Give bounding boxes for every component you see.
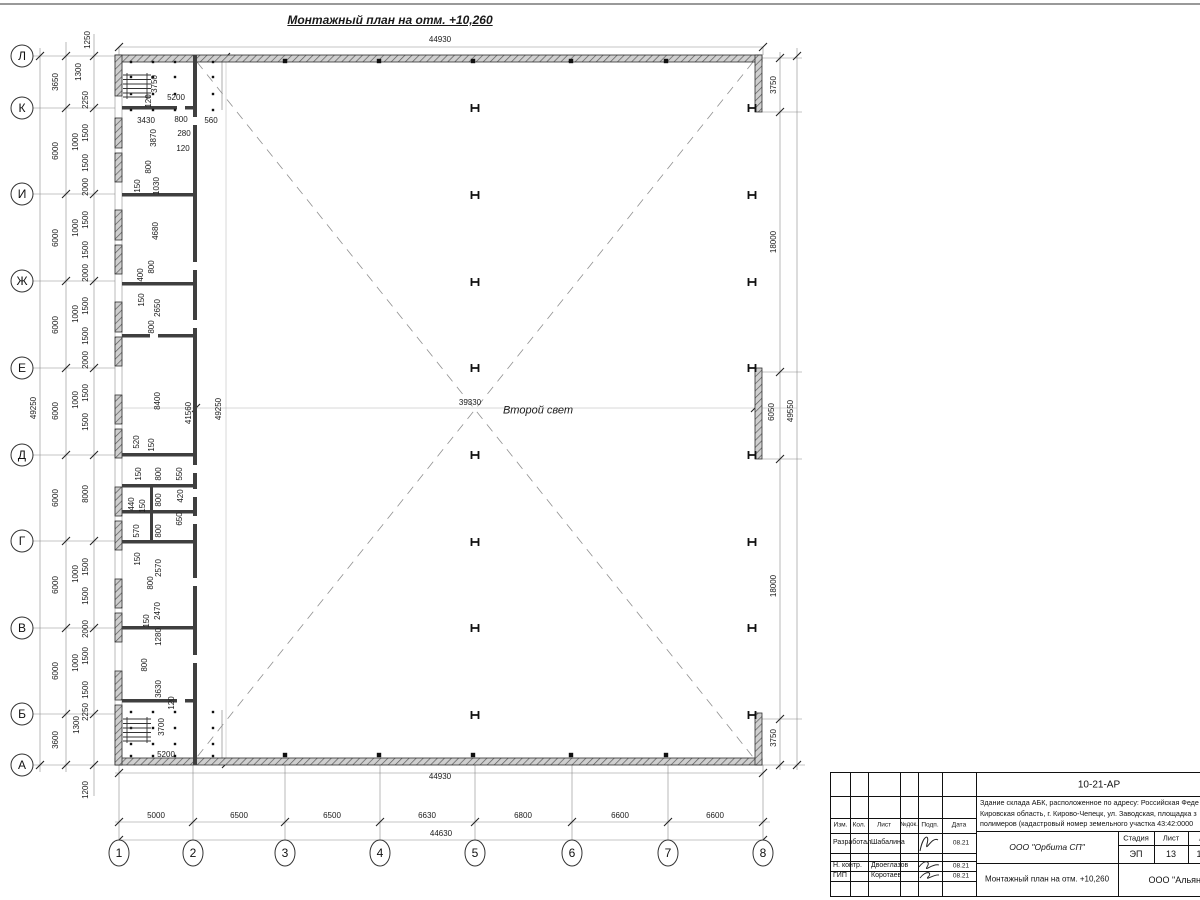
row-name: Коротаев <box>871 872 901 879</box>
col-header-ndoc: №док. <box>900 822 918 828</box>
row-date: 08.21 <box>953 863 969 870</box>
titleblock-line <box>831 853 976 854</box>
drawing-sheet: Монтажный план на отм. +10,2604493044930… <box>0 0 1200 900</box>
title-block: Изм. Кол. Лист №док. Подп. Дата Разработ… <box>830 772 1200 897</box>
row-name: Шабалина <box>871 839 905 846</box>
project-address: Здание склада АБК, расположенное по адре… <box>980 798 1199 830</box>
sheet-title: Монтажный план на отм. +10,260 <box>985 875 1109 884</box>
address-line: Здание склада АБК, расположенное по адре… <box>980 798 1199 809</box>
document-code: 10-21-АР <box>1078 780 1120 791</box>
titleblock-line <box>1154 831 1155 863</box>
titleblock-line <box>850 773 851 896</box>
roof-cross-bracing-dashed <box>197 62 753 757</box>
col-header-data: Дата <box>952 822 966 829</box>
titleblock-line <box>1188 831 1189 863</box>
stage-value: ЭП <box>1130 849 1143 859</box>
row-name: Двоеглазов <box>871 862 908 869</box>
axis-grid-lines <box>33 56 763 842</box>
titleblock-line <box>831 833 976 834</box>
titleblock-line <box>868 773 869 896</box>
inner-partitions <box>122 55 198 765</box>
address-line: Кировская область, г. Кирово-Чепецк, ул.… <box>980 809 1199 820</box>
col-header-podp: Подп. <box>921 822 938 829</box>
col-header-list: Лист <box>877 822 891 829</box>
titleblock-line <box>831 818 976 819</box>
row-role: Н. контр. <box>833 862 862 869</box>
outer-walls <box>115 55 762 765</box>
row-role: ГИП <box>833 872 847 879</box>
dimension-lines <box>40 34 805 840</box>
stage-label: Стадия <box>1123 834 1149 843</box>
col-header-kol: Кол. <box>853 822 866 829</box>
titleblock-line <box>1118 845 1200 846</box>
titleblock-line <box>976 863 1200 864</box>
sheets-value: 1 <box>1196 849 1200 859</box>
sheet-label: Лист <box>1163 834 1179 843</box>
titleblock-line <box>942 773 943 896</box>
org2-name: ООО "Альянс <box>1149 875 1200 885</box>
titleblock-line <box>831 796 1200 797</box>
row-role: Разработал <box>833 839 871 846</box>
col-header-izm: Изм. <box>834 822 848 829</box>
address-line: полимеров (кадастровый номер земельного … <box>980 819 1199 830</box>
signature-marks <box>917 831 942 883</box>
titleblock-line <box>976 773 977 896</box>
row-date: 08.21 <box>953 873 969 880</box>
titleblock-line <box>976 831 1200 832</box>
sheet-value: 13 <box>1166 849 1176 859</box>
row-date: 08.21 <box>953 840 969 847</box>
org-name: ООО "Орбита СП" <box>1009 842 1084 852</box>
titleblock-line <box>831 881 976 882</box>
plan-drawing <box>0 0 1200 900</box>
